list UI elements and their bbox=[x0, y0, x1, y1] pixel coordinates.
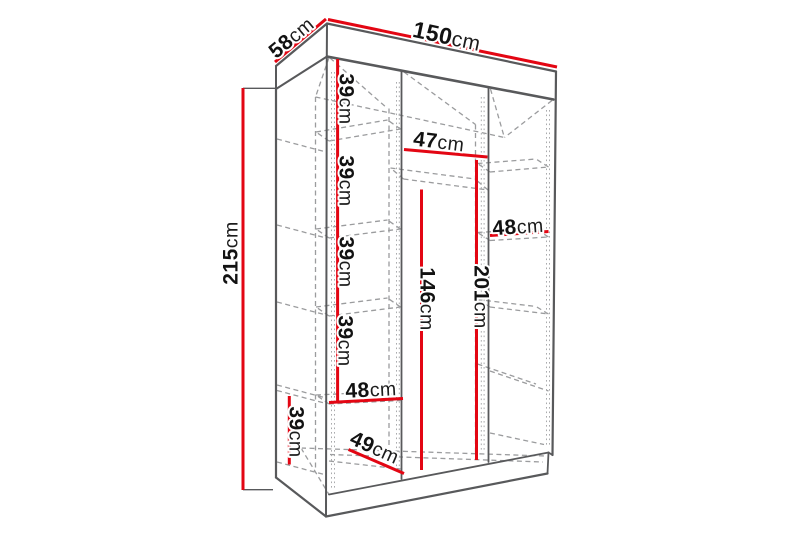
diagram-canvas: 58cm 150cm 215cm 39cm 39cm 39cm 39cm 48c… bbox=[0, 0, 800, 533]
dim-shelf-gap-1-label: 39cm bbox=[335, 73, 358, 124]
dimension-labels: 58cm 150cm 215cm 39cm 39cm 39cm 39cm 48c… bbox=[220, 12, 545, 468]
dim-shelf-gap-2-label: 39cm bbox=[335, 155, 358, 206]
dim-left-width-label: 48cm bbox=[345, 377, 397, 403]
dim-height-label: 215cm bbox=[220, 221, 243, 285]
dim-right-width-label: 48cm bbox=[492, 214, 545, 241]
dim-shelf-gap-3-label: 39cm bbox=[335, 236, 358, 287]
dim-right-height-label: 201cm bbox=[470, 265, 493, 329]
wardrobe-interior-dashed-lines bbox=[277, 58, 552, 495]
dim-hanging-height-label: 146cm bbox=[416, 267, 439, 331]
dim-plinth-height-label: 39cm bbox=[285, 406, 308, 457]
dimension-ticks bbox=[243, 88, 276, 489]
dim-width-label: 150cm bbox=[411, 16, 484, 56]
dim-shelf-gap-4-label: 39cm bbox=[334, 315, 357, 366]
wardrobe-diagram: 58cm 150cm 215cm 39cm 39cm 39cm 39cm 48c… bbox=[0, 0, 800, 533]
dim-floor-depth-label: 49cm bbox=[346, 427, 402, 469]
